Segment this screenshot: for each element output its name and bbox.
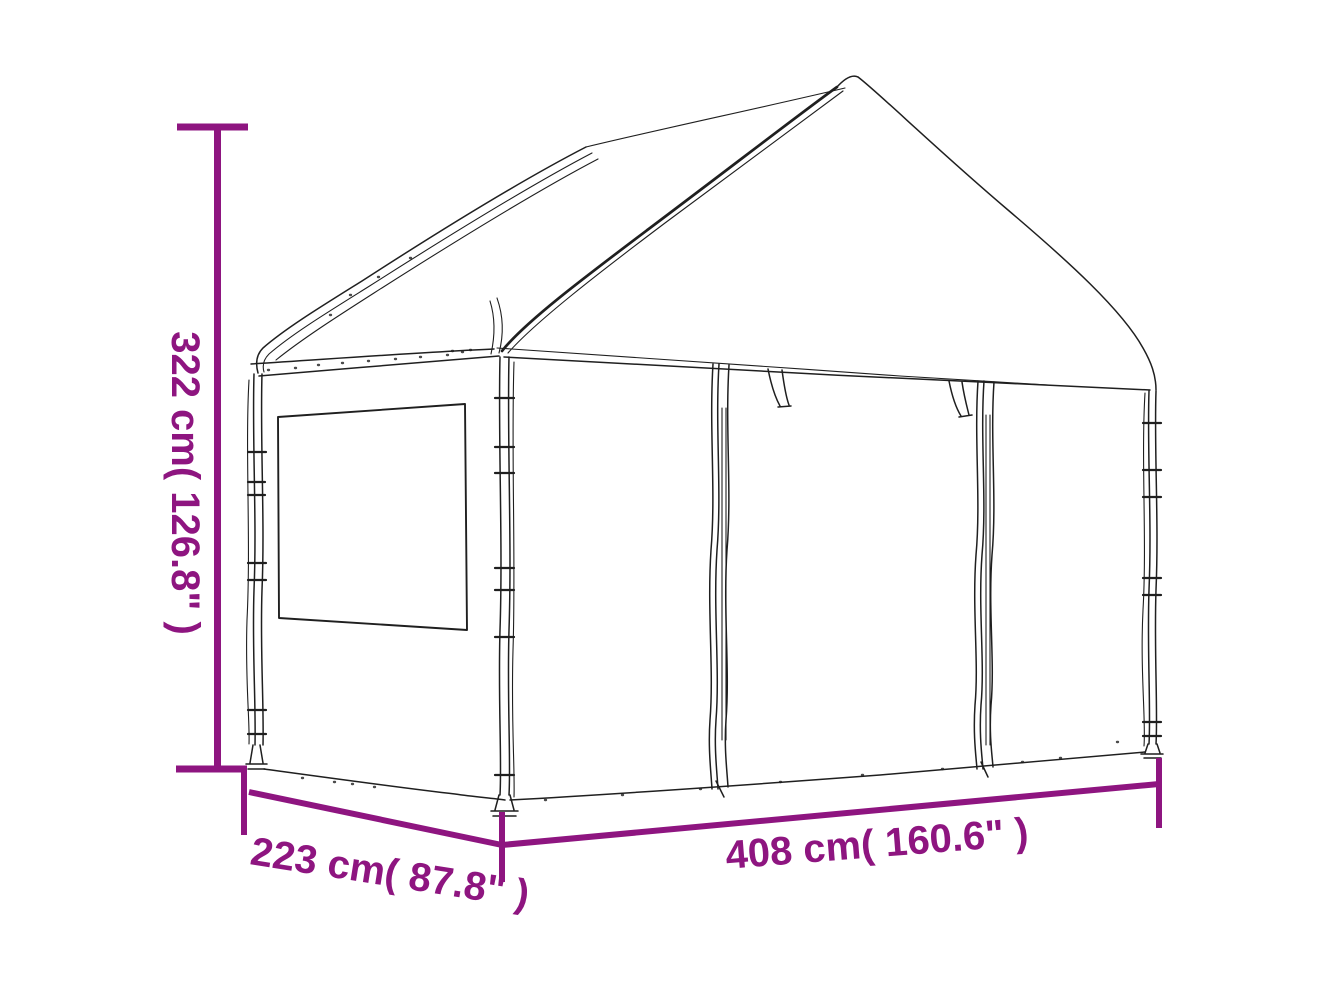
pole-back-left bbox=[253, 374, 263, 745]
wall-edge-back-right bbox=[1142, 393, 1145, 746]
dimension-annotations: 322 cm( 126.8" ) 223 cm( 87.8" ) 408 cm(… bbox=[163, 127, 1159, 917]
tie-strap-left bbox=[768, 369, 791, 407]
gable-corner-trim bbox=[490, 298, 502, 354]
door-edge-left bbox=[512, 362, 514, 797]
wall-top-edge-front bbox=[504, 357, 1150, 390]
door-zipper-left-pull bbox=[716, 781, 724, 797]
roof-front-gable-edge-inner bbox=[508, 91, 843, 353]
pole-front-center bbox=[499, 357, 510, 795]
pole-back-right-rings bbox=[1143, 423, 1161, 736]
roof-back-gable-trim bbox=[257, 147, 586, 373]
pole-back-left-foot bbox=[246, 745, 267, 769]
roof-ridge-line bbox=[586, 88, 845, 147]
roof-apex bbox=[836, 76, 858, 88]
diagram-canvas: 322 cm( 126.8" ) 223 cm( 87.8" ) 408 cm(… bbox=[0, 0, 1332, 999]
roof-right-edge bbox=[858, 77, 1156, 390]
roof-back-gable-trim-2 bbox=[263, 153, 592, 372]
wall-bottom-edge-left bbox=[264, 769, 505, 800]
width-dimension: 408 cm( 160.6" ) bbox=[502, 758, 1159, 878]
gazebo-illustration bbox=[246, 76, 1163, 816]
side-window-frame bbox=[278, 404, 467, 630]
height-dimension: 322 cm( 126.8" ) bbox=[163, 127, 248, 769]
wall-top-edge-left bbox=[259, 356, 499, 376]
pole-back-right bbox=[1148, 391, 1157, 744]
door-zipper-right-track bbox=[986, 415, 990, 745]
eave-edge-front-roof bbox=[497, 348, 1048, 385]
roof-back-gable-trim-3 bbox=[276, 159, 598, 360]
pole-front-center-rings bbox=[495, 398, 514, 775]
door-zipper-right-pull bbox=[981, 762, 988, 777]
wall-edge-back-left bbox=[247, 380, 250, 744]
height-dimension-label: 322 cm( 126.8" ) bbox=[163, 331, 207, 635]
gazebo-dimension-diagram: 322 cm( 126.8" ) 223 cm( 87.8" ) 408 cm(… bbox=[0, 0, 1332, 999]
tie-strap-right bbox=[949, 381, 972, 417]
door-zipper-right bbox=[974, 381, 994, 769]
depth-dimension: 223 cm( 87.8" ) bbox=[244, 766, 532, 917]
